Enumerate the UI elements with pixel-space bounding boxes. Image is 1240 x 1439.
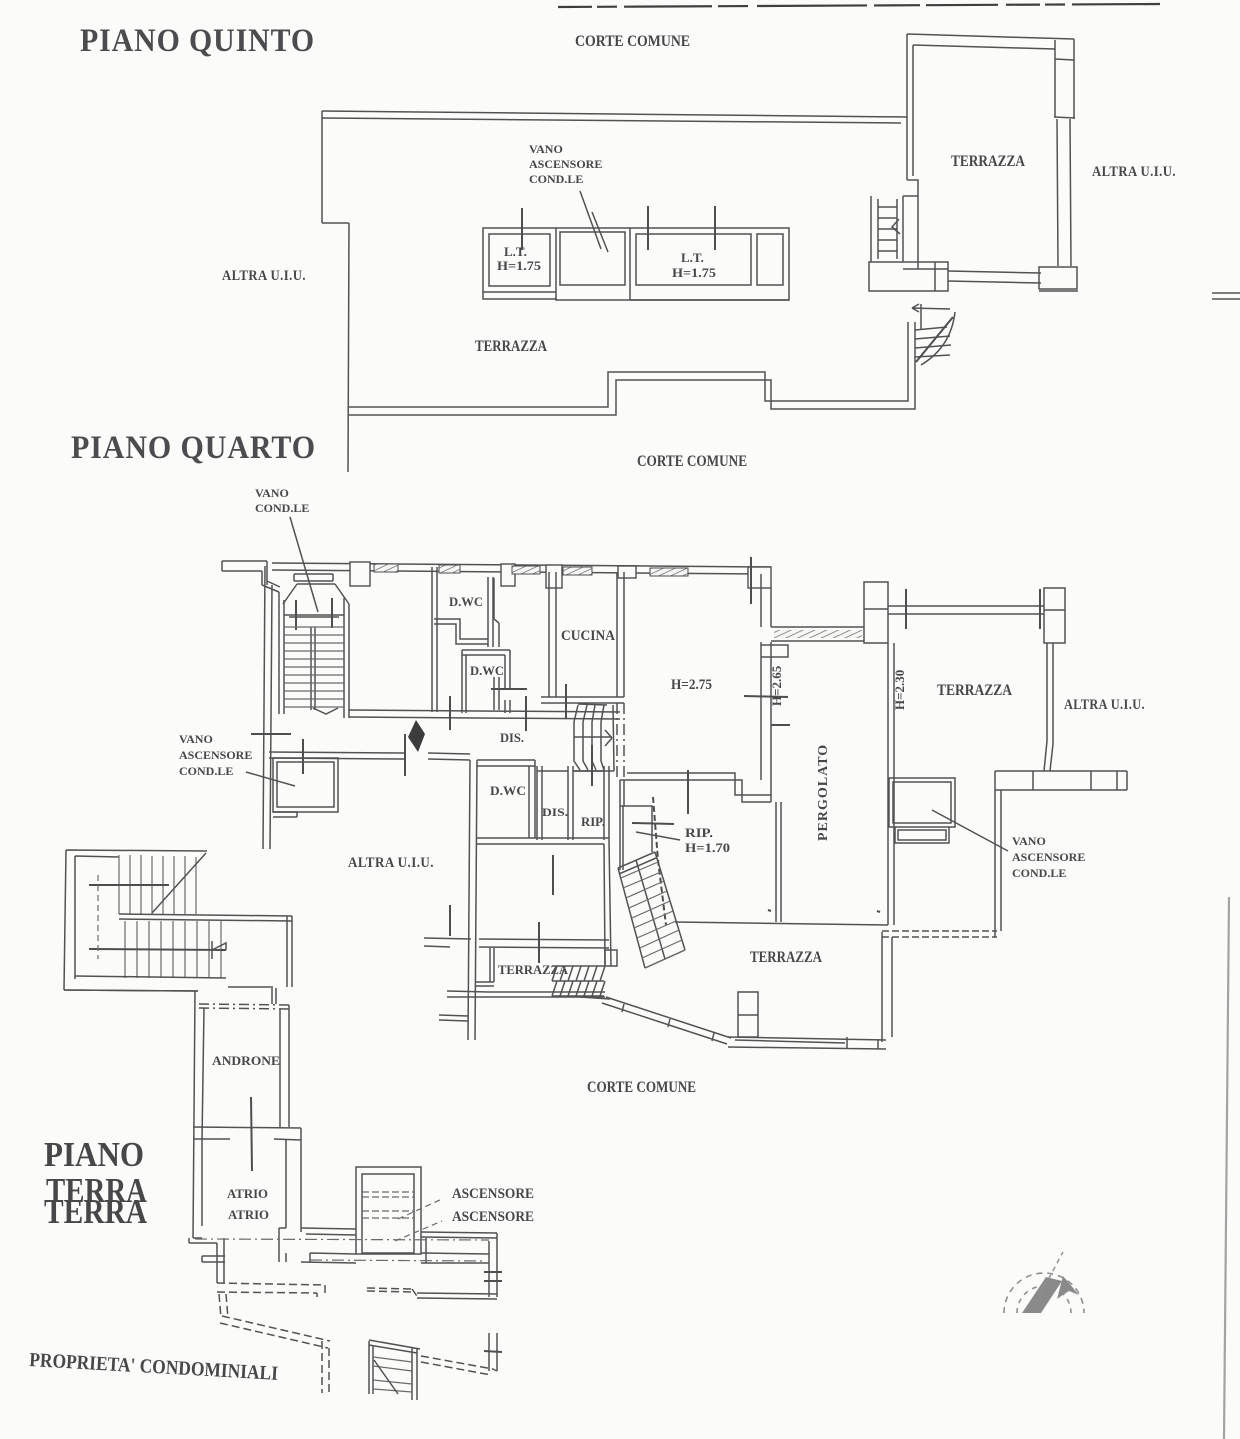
svg-text:ASCENSORE: ASCENSORE	[452, 1186, 534, 1202]
svg-text:ASCENSORE: ASCENSORE	[1012, 850, 1085, 864]
svg-text:CORTE COMUNE: CORTE COMUNE	[575, 33, 690, 50]
svg-text:ALTRA U.I.U.: ALTRA U.I.U.	[1064, 697, 1145, 713]
svg-text:H=2.30: H=2.30	[892, 670, 907, 710]
svg-text:CORTE COMUNE: CORTE COMUNE	[587, 1079, 696, 1096]
svg-text:CORTE COMUNE: CORTE COMUNE	[637, 453, 747, 470]
svg-text:PERGOLATO: PERGOLATO	[816, 744, 831, 841]
svg-text:CUCINA: CUCINA	[561, 628, 615, 644]
svg-text:PIANO: PIANO	[44, 1135, 144, 1174]
svg-text:ASCENSORE: ASCENSORE	[529, 157, 602, 171]
svg-text:L.T.: L.T.	[504, 244, 527, 259]
svg-text:TERRA: TERRA	[44, 1192, 148, 1231]
svg-text:H=1.75: H=1.75	[672, 265, 717, 280]
svg-text:ALTRA U.I.U.: ALTRA U.I.U.	[222, 268, 306, 284]
svg-text:ATRIO: ATRIO	[228, 1207, 269, 1222]
svg-text:PROPRIETA' CONDOMINIALI: PROPRIETA' CONDOMINIALI	[29, 1349, 279, 1385]
svg-text:DIS.: DIS.	[542, 805, 568, 819]
svg-text:D.WC: D.WC	[449, 594, 483, 609]
svg-text:D.WC: D.WC	[470, 663, 504, 678]
svg-text:COND.LE: COND.LE	[1012, 866, 1066, 880]
svg-text:ALTRA U.I.U.: ALTRA U.I.U.	[348, 855, 434, 871]
svg-text:VANO: VANO	[529, 142, 563, 156]
svg-text:ASCENSORE: ASCENSORE	[179, 748, 252, 762]
svg-text:L.T.: L.T.	[681, 250, 704, 265]
svg-text:PIANO QUARTO: PIANO QUARTO	[71, 430, 316, 466]
svg-text:VANO: VANO	[1012, 834, 1046, 848]
svg-text:RIP.: RIP.	[581, 814, 605, 829]
svg-text:ATRIO: ATRIO	[227, 1186, 268, 1201]
svg-text:H=2.65: H=2.65	[769, 665, 784, 706]
svg-text:VANO: VANO	[179, 732, 213, 746]
svg-text:COND.LE: COND.LE	[179, 764, 233, 778]
svg-text:TERRAZZA: TERRAZZA	[750, 949, 822, 966]
svg-text:VANO: VANO	[255, 486, 289, 500]
svg-text:DIS.: DIS.	[500, 730, 524, 745]
svg-text:ANDRONE: ANDRONE	[212, 1053, 280, 1068]
svg-text:H=1.75: H=1.75	[497, 258, 542, 273]
svg-text:D.WC: D.WC	[490, 783, 526, 798]
svg-text:ASCENSORE: ASCENSORE	[452, 1209, 534, 1225]
svg-text:H=1.70: H=1.70	[685, 840, 730, 855]
svg-text:ALTRA U.I.U.: ALTRA U.I.U.	[1092, 164, 1176, 180]
svg-text:H=2.75: H=2.75	[671, 677, 712, 693]
svg-text:RIP.: RIP.	[685, 825, 713, 840]
svg-text:TERRAZZA: TERRAZZA	[951, 153, 1025, 170]
svg-text:TERRAZZA: TERRAZZA	[498, 962, 569, 977]
svg-text:TERRAZZA: TERRAZZA	[475, 338, 547, 355]
svg-text:COND.LE: COND.LE	[255, 501, 309, 515]
svg-text:TERRAZZA: TERRAZZA	[937, 682, 1012, 699]
svg-text:COND.LE: COND.LE	[529, 172, 583, 186]
svg-text:PIANO QUINTO: PIANO QUINTO	[80, 23, 315, 59]
